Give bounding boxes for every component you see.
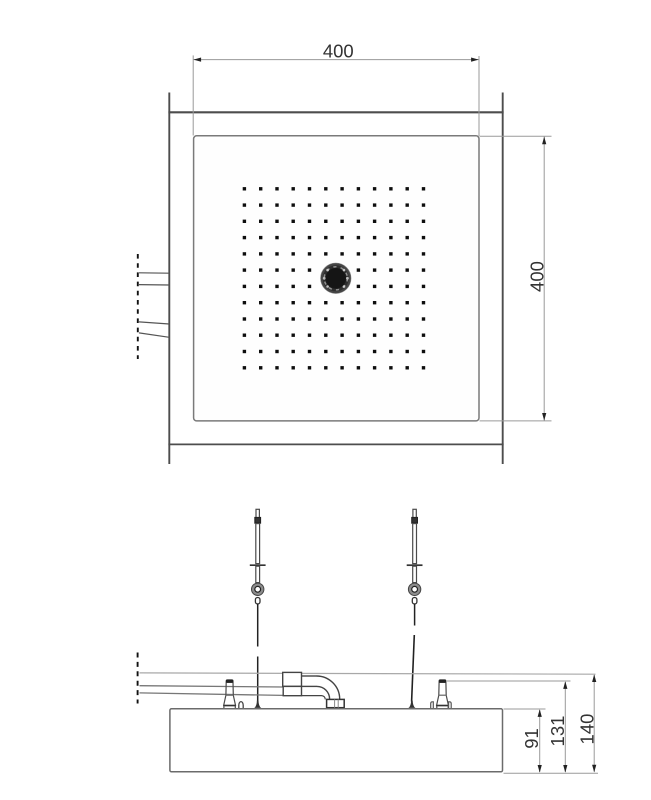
svg-text:400: 400 (323, 41, 354, 62)
svg-text:131: 131 (547, 716, 568, 747)
svg-text:140: 140 (576, 714, 597, 745)
svg-text:91: 91 (521, 728, 542, 749)
svg-text:400: 400 (527, 261, 548, 292)
